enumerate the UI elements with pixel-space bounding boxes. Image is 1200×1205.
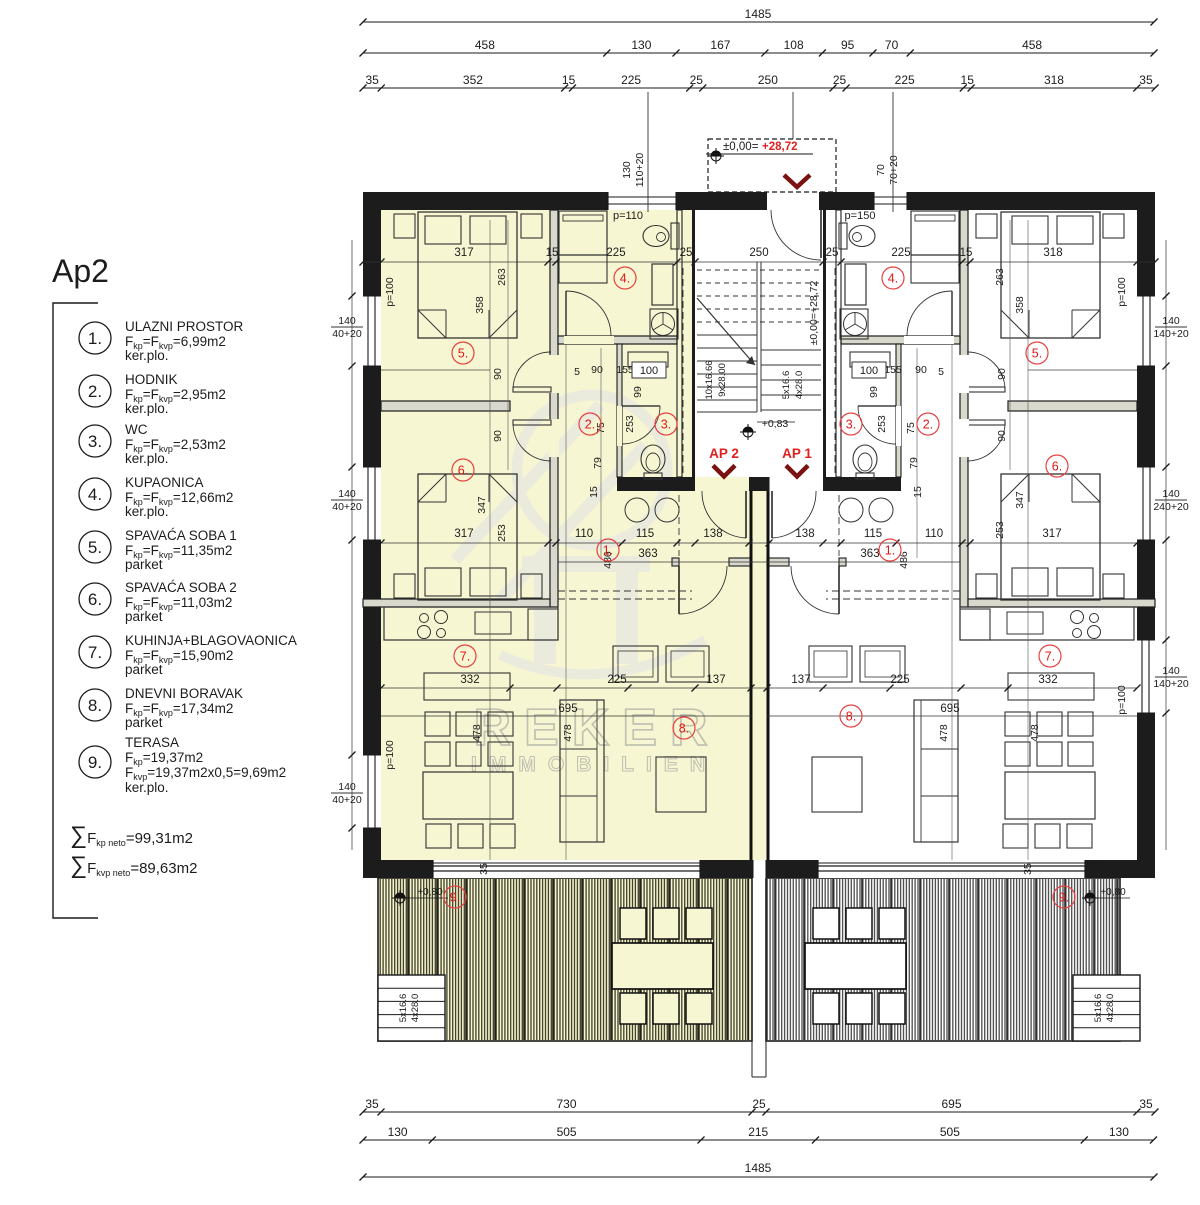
svg-text:347: 347 [1014, 491, 1026, 509]
svg-text:HODNIK: HODNIK [125, 372, 178, 387]
svg-text:155: 155 [884, 364, 902, 376]
svg-text:35: 35 [365, 73, 379, 87]
svg-text:7.: 7. [1045, 650, 1055, 664]
svg-text:SPAVAĆA SOBA 1: SPAVAĆA SOBA 1 [125, 528, 237, 543]
svg-text:130: 130 [631, 38, 651, 52]
svg-text:25: 25 [680, 247, 693, 259]
svg-text:5.: 5. [458, 347, 468, 361]
svg-text:10x16.66: 10x16.66 [704, 360, 715, 399]
svg-text:695: 695 [940, 703, 959, 715]
svg-text:5: 5 [574, 366, 580, 378]
svg-text:225: 225 [895, 73, 915, 87]
svg-text:225: 225 [606, 247, 625, 259]
svg-text:parket: parket [125, 715, 163, 730]
svg-text:115: 115 [636, 528, 654, 540]
svg-text:75: 75 [905, 422, 917, 434]
svg-text:458: 458 [1022, 38, 1042, 52]
svg-text:1485: 1485 [745, 1161, 772, 1175]
svg-text:317: 317 [454, 528, 473, 540]
svg-text:695: 695 [558, 703, 577, 715]
svg-text:250: 250 [758, 73, 778, 87]
svg-text:100: 100 [640, 365, 658, 377]
svg-text:8.: 8. [846, 710, 856, 724]
svg-text:240+20: 240+20 [1153, 501, 1188, 513]
svg-text:4.: 4. [620, 272, 630, 286]
svg-text:9.: 9. [450, 891, 460, 905]
svg-text:+28,72: +28,72 [762, 141, 798, 153]
svg-text:5x16.6: 5x16.6 [781, 371, 792, 400]
svg-text:+0,80: +0,80 [1100, 887, 1126, 898]
svg-text:1.: 1. [603, 544, 613, 558]
svg-text:140: 140 [1162, 315, 1180, 327]
svg-text:140: 140 [338, 781, 356, 793]
svg-text:+0,83: +0,83 [762, 418, 789, 430]
svg-text:695: 695 [941, 1097, 961, 1111]
svg-text:AP 2: AP 2 [709, 446, 739, 461]
svg-text:parket: parket [125, 557, 163, 572]
svg-text:3.: 3. [846, 418, 856, 432]
svg-text:15: 15 [960, 247, 973, 259]
svg-text:KUHINJA+BLAGOVAONICA: KUHINJA+BLAGOVAONICA [125, 633, 297, 648]
svg-text:+0,80: +0,80 [417, 887, 443, 898]
svg-text:SPAVAĆA SOBA 2: SPAVAĆA SOBA 2 [125, 580, 237, 595]
svg-text:2.: 2. [923, 418, 933, 432]
svg-text:35: 35 [1139, 73, 1153, 87]
svg-text:6.: 6. [88, 590, 102, 609]
svg-text:15: 15 [588, 486, 600, 498]
svg-text:115: 115 [864, 528, 882, 540]
svg-text:4.: 4. [88, 485, 102, 504]
svg-text:318: 318 [1043, 247, 1062, 259]
svg-text:40+20: 40+20 [332, 794, 362, 806]
svg-text:90: 90 [915, 364, 927, 376]
svg-text:263: 263 [994, 268, 1006, 286]
svg-text:Ap2: Ap2 [52, 253, 109, 289]
svg-text:4x28.0: 4x28.0 [410, 994, 421, 1023]
svg-text:p=100: p=100 [1116, 685, 1128, 715]
svg-text:5: 5 [938, 366, 944, 378]
svg-text:140+20: 140+20 [1153, 678, 1188, 690]
svg-text:99: 99 [632, 386, 644, 398]
svg-text:ker.plo.: ker.plo. [125, 780, 169, 795]
svg-text:ker.plo.: ker.plo. [125, 348, 169, 363]
svg-text:358: 358 [1014, 296, 1026, 314]
svg-text:±0,00=+28,72: ±0,00=+28,72 [808, 280, 820, 345]
svg-text:90: 90 [591, 364, 603, 376]
svg-text:478: 478 [938, 724, 950, 742]
svg-text:358: 358 [474, 296, 486, 314]
svg-text:15: 15 [961, 73, 975, 87]
svg-text:155: 155 [616, 364, 634, 376]
svg-text:DNEVNI BORAVAK: DNEVNI BORAVAK [125, 686, 243, 701]
svg-text:15: 15 [562, 73, 576, 87]
svg-text:25: 25 [833, 73, 847, 87]
svg-text:35: 35 [1140, 247, 1153, 259]
svg-text:5.: 5. [1032, 347, 1042, 361]
svg-text:90: 90 [492, 430, 504, 442]
svg-text:90: 90 [996, 368, 1008, 380]
svg-text:110: 110 [925, 528, 943, 540]
svg-text:100: 100 [860, 365, 878, 377]
svg-text:253: 253 [624, 415, 636, 433]
svg-text:253: 253 [876, 415, 888, 433]
svg-text:5x16.6: 5x16.6 [398, 994, 409, 1023]
svg-text:352: 352 [463, 73, 483, 87]
svg-text:137: 137 [706, 674, 725, 686]
svg-text:90: 90 [492, 368, 504, 380]
svg-text:p=100: p=100 [384, 740, 396, 770]
svg-text:ker.plo.: ker.plo. [125, 401, 169, 416]
svg-text:4x28.0: 4x28.0 [794, 371, 805, 400]
svg-text:35: 35 [366, 247, 379, 259]
svg-text:363: 363 [638, 548, 657, 560]
svg-text:225: 225 [621, 73, 641, 87]
svg-text:140: 140 [1162, 488, 1180, 500]
svg-text:90: 90 [996, 430, 1008, 442]
svg-text:110: 110 [575, 528, 593, 540]
svg-text:95: 95 [841, 38, 855, 52]
svg-text:5.: 5. [88, 538, 102, 557]
svg-text:35: 35 [1139, 1097, 1153, 1111]
svg-text:4.: 4. [888, 272, 898, 286]
svg-text:130: 130 [621, 161, 633, 179]
svg-text:108: 108 [784, 38, 804, 52]
svg-text:25: 25 [826, 247, 839, 259]
svg-text:9x28.00: 9x28.00 [717, 363, 728, 397]
svg-text:99: 99 [868, 386, 880, 398]
svg-text:8.: 8. [88, 696, 102, 715]
svg-text:79: 79 [908, 457, 920, 469]
svg-text:138: 138 [795, 528, 814, 540]
svg-text:138: 138 [703, 528, 722, 540]
svg-text:79: 79 [592, 457, 604, 469]
svg-text:p=150: p=150 [845, 210, 876, 222]
svg-text:15: 15 [912, 486, 924, 498]
svg-text:130: 130 [388, 1125, 408, 1139]
svg-text:478: 478 [562, 724, 574, 742]
svg-text:parket: parket [125, 662, 163, 677]
svg-text:140: 140 [1162, 665, 1180, 677]
svg-text:ULAZNI PROSTOR: ULAZNI PROSTOR [125, 319, 244, 334]
svg-text:140+20: 140+20 [1153, 328, 1188, 340]
svg-text:1.: 1. [88, 329, 102, 348]
svg-text:317: 317 [1042, 528, 1061, 540]
svg-text:15: 15 [546, 247, 559, 259]
svg-text:140: 140 [338, 488, 356, 500]
svg-text:40+20: 40+20 [332, 328, 362, 340]
svg-text:110+20: 110+20 [634, 153, 646, 188]
svg-text:250: 250 [749, 247, 768, 259]
svg-text:p=100: p=100 [1116, 277, 1128, 307]
svg-text:3.: 3. [88, 432, 102, 451]
svg-text:7.: 7. [88, 643, 102, 662]
svg-text:225: 225 [890, 674, 909, 686]
svg-text:1.: 1. [885, 544, 895, 558]
svg-text:p=100: p=100 [384, 277, 396, 307]
svg-text:40+20: 40+20 [332, 501, 362, 513]
svg-text:6.: 6. [458, 464, 468, 478]
svg-text:WC: WC [125, 422, 148, 437]
svg-text:1485: 1485 [745, 7, 772, 21]
svg-text:215: 215 [748, 1125, 768, 1139]
svg-text:225: 225 [607, 674, 626, 686]
svg-text:263: 263 [496, 268, 508, 286]
svg-text:4x28.0: 4x28.0 [1105, 994, 1116, 1023]
svg-text:p=110: p=110 [613, 210, 643, 222]
svg-text:35: 35 [478, 863, 490, 875]
svg-text:363: 363 [860, 548, 879, 560]
svg-text:458: 458 [475, 38, 495, 52]
svg-text:505: 505 [557, 1125, 577, 1139]
svg-text:730: 730 [556, 1097, 576, 1111]
svg-text:9.: 9. [88, 753, 102, 772]
svg-text:317: 317 [454, 247, 473, 259]
svg-text:332: 332 [460, 674, 479, 686]
svg-text:2.: 2. [88, 382, 102, 401]
svg-text:318: 318 [1044, 73, 1064, 87]
svg-text:140: 140 [338, 315, 356, 327]
svg-text:2.: 2. [585, 418, 595, 432]
svg-text:478: 478 [471, 724, 483, 742]
svg-text:35: 35 [1022, 863, 1034, 875]
svg-text:9.: 9. [1059, 891, 1069, 905]
svg-text:AP 1: AP 1 [782, 446, 812, 461]
svg-text:70+20: 70+20 [888, 155, 900, 185]
svg-text:6.: 6. [1052, 460, 1062, 474]
svg-text:225: 225 [891, 247, 910, 259]
svg-text:137: 137 [791, 674, 810, 686]
svg-text:332: 332 [1038, 674, 1057, 686]
svg-text:5x16.6: 5x16.6 [1093, 994, 1104, 1023]
svg-text:505: 505 [940, 1125, 960, 1139]
svg-text:ker.plo.: ker.plo. [125, 451, 169, 466]
svg-text:7.: 7. [460, 650, 470, 664]
svg-text:347: 347 [476, 496, 488, 514]
svg-text:3.: 3. [661, 418, 671, 432]
svg-text:ker.plo.: ker.plo. [125, 504, 169, 519]
svg-text:25: 25 [752, 1097, 766, 1111]
svg-text:parket: parket [125, 609, 163, 624]
svg-text:478: 478 [1029, 724, 1041, 742]
svg-text:25: 25 [690, 73, 704, 87]
svg-text:8.: 8. [679, 722, 689, 736]
svg-text:KUPAONICA: KUPAONICA [125, 475, 204, 490]
svg-text:35: 35 [365, 1097, 379, 1111]
svg-text:TERASA: TERASA [125, 735, 179, 750]
svg-text:253: 253 [994, 521, 1006, 539]
svg-text:70: 70 [885, 38, 899, 52]
svg-text:167: 167 [710, 38, 730, 52]
svg-text:253: 253 [496, 524, 508, 542]
svg-text:±0,00=: ±0,00= [723, 141, 759, 153]
svg-text:130: 130 [1109, 1125, 1129, 1139]
svg-text:70: 70 [875, 164, 887, 176]
